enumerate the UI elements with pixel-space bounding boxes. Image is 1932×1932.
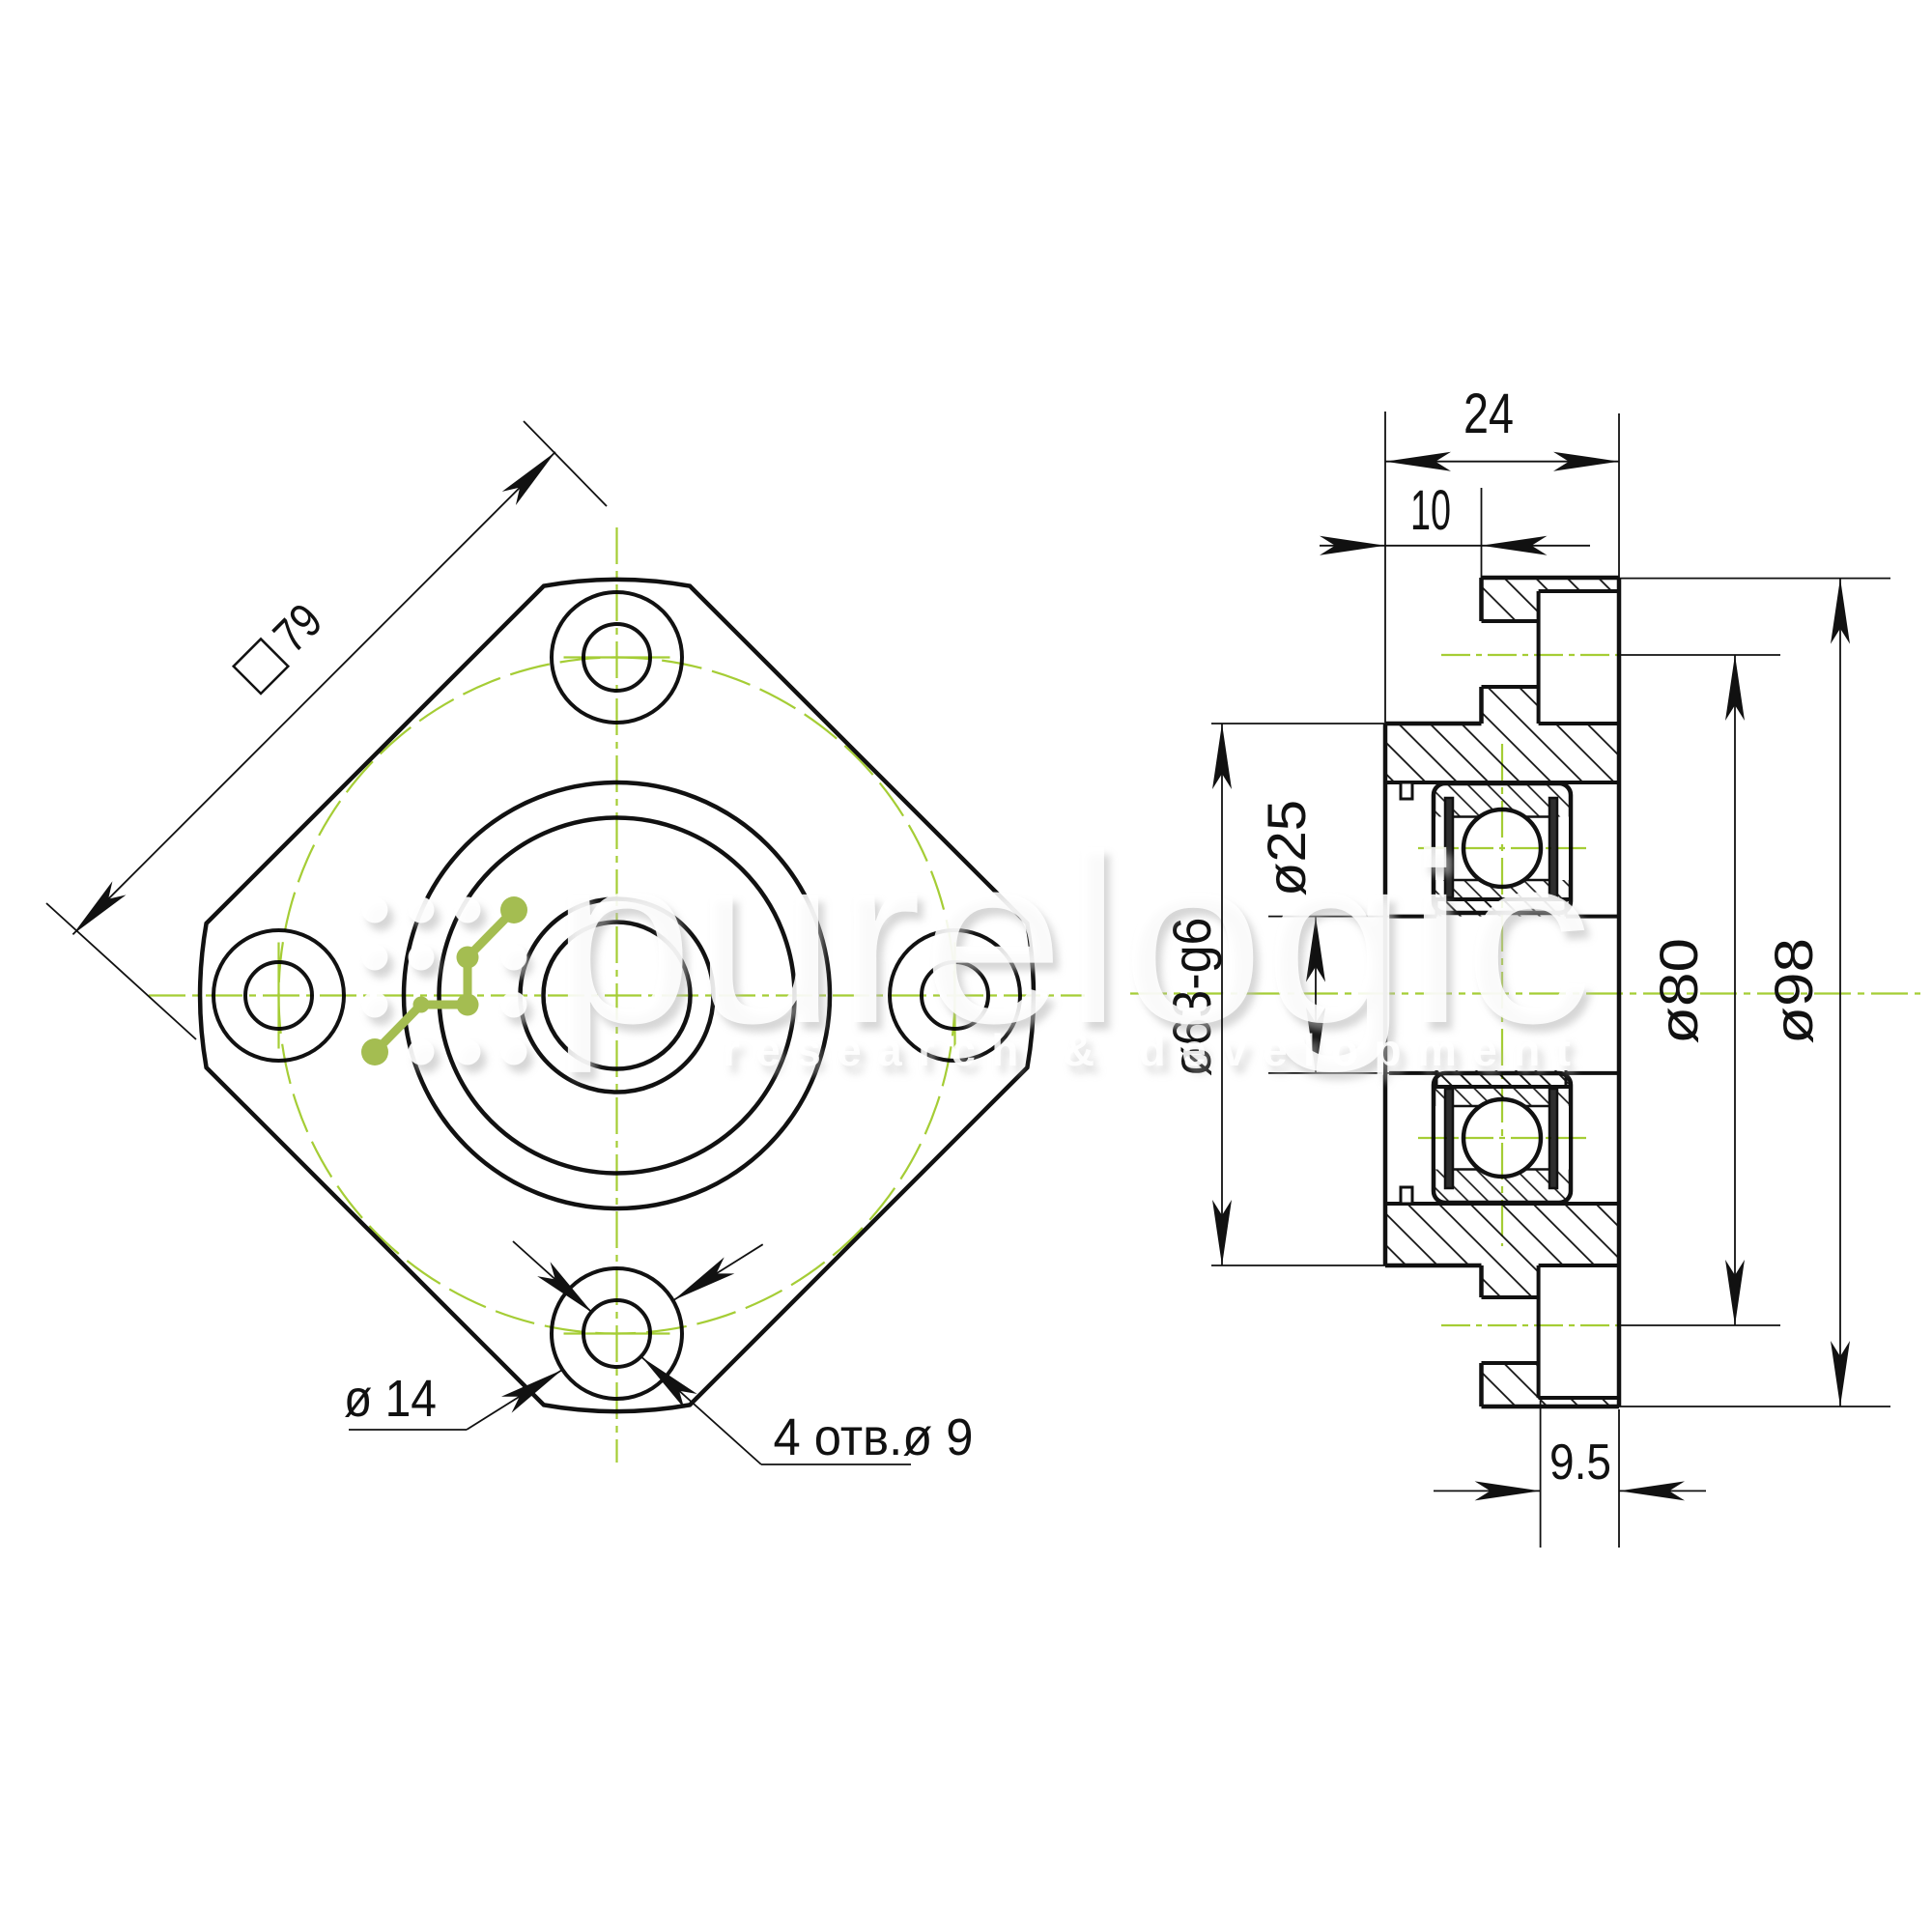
svg-text:9.5: 9.5 <box>1549 1435 1611 1491</box>
svg-text:10: 10 <box>1410 479 1451 542</box>
svg-text:ø 14: ø 14 <box>344 1370 437 1428</box>
svg-text:ø80: ø80 <box>1648 938 1709 1044</box>
svg-text:4 отв.ø 9: 4 отв.ø 9 <box>774 1408 974 1466</box>
svg-text:ø98: ø98 <box>1763 938 1824 1044</box>
svg-text:research & development: research & development <box>723 1025 1571 1075</box>
svg-text:ø25: ø25 <box>1256 800 1317 896</box>
svg-text:24: 24 <box>1463 383 1514 445</box>
